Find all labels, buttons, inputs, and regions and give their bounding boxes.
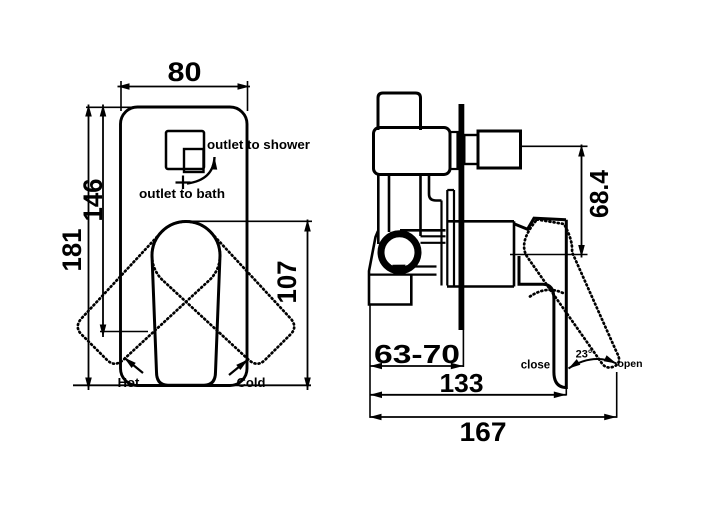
svg-text:146: 146 xyxy=(78,179,108,222)
svg-text:Hot: Hot xyxy=(118,375,140,390)
svg-text:Cold: Cold xyxy=(237,375,266,390)
svg-text:outlet to shower: outlet to shower xyxy=(207,138,310,152)
svg-text:63-70: 63-70 xyxy=(374,339,460,369)
svg-text:80: 80 xyxy=(168,57,202,87)
svg-text:23°: 23° xyxy=(576,349,593,361)
svg-text:107: 107 xyxy=(272,261,302,304)
svg-text:167: 167 xyxy=(460,417,507,447)
svg-text:close: close xyxy=(521,360,550,372)
svg-text:133: 133 xyxy=(440,368,484,398)
svg-text:open: open xyxy=(617,358,642,370)
svg-text:outlet to bath: outlet to bath xyxy=(139,187,225,201)
svg-text:68.4: 68.4 xyxy=(584,169,614,218)
svg-text:181: 181 xyxy=(57,229,87,272)
